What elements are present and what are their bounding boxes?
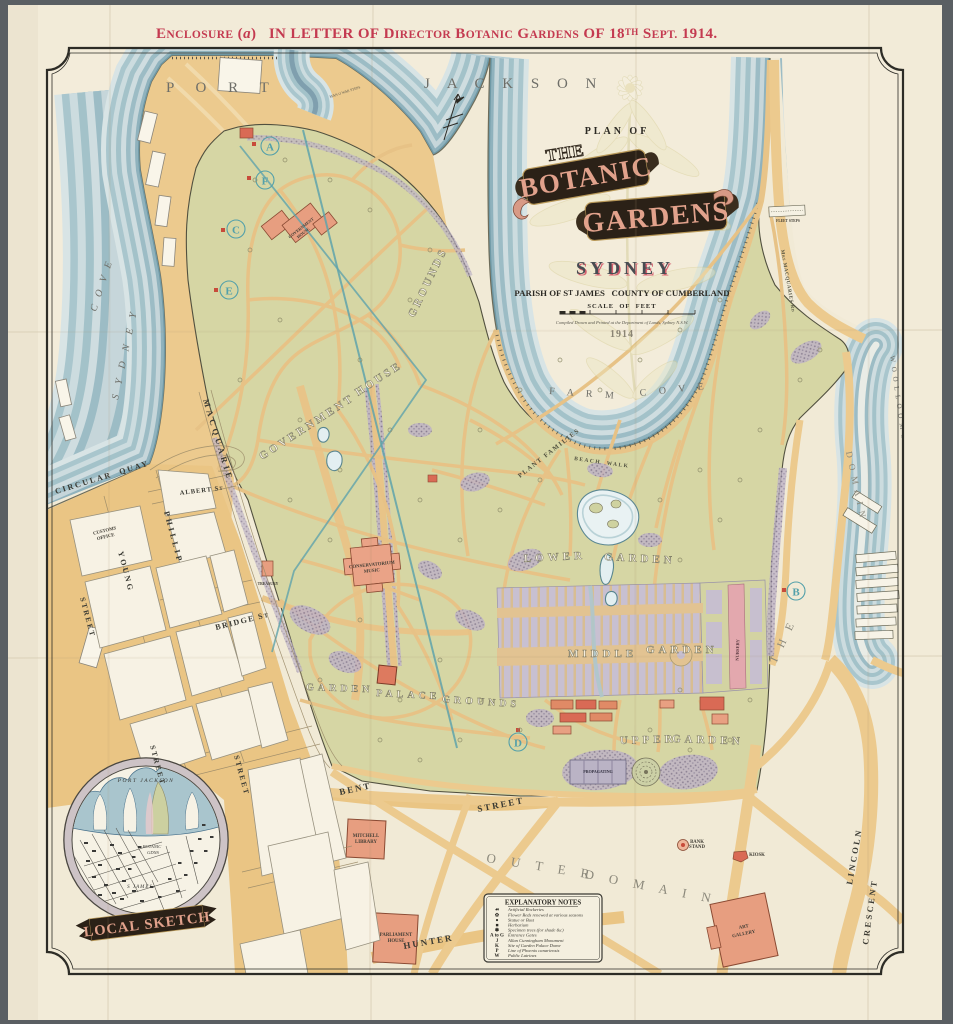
svg-text:GDNS: GDNS xyxy=(147,850,160,855)
svg-text:PROPAGATING: PROPAGATING xyxy=(583,769,612,774)
svg-text:D: D xyxy=(514,738,522,750)
svg-text:PARLIAMENT: PARLIAMENT xyxy=(380,933,413,938)
svg-text:GARDEN: GARDEN xyxy=(672,733,744,747)
svg-text:P O R T: P O R T xyxy=(166,80,278,96)
svg-text:Public Latrines: Public Latrines xyxy=(507,953,537,958)
svg-text:NURSERY: NURSERY xyxy=(735,638,741,661)
svg-text:MIDDLE: MIDDLE xyxy=(568,648,637,660)
svg-text:B: B xyxy=(792,587,800,599)
svg-text:UPPER: UPPER xyxy=(620,733,677,747)
svg-text:GARDEN: GARDEN xyxy=(646,644,718,656)
svg-text:PARISH OF ST JAMES COUNTY OF: PARISH OF ST JAMES COUNTY OF CUMBERLAND xyxy=(514,288,729,298)
svg-text:SCALE OF FEET: SCALE OF FEET xyxy=(587,303,656,310)
svg-text:TREASURY: TREASURY xyxy=(258,582,279,586)
svg-text:HOUSE: HOUSE xyxy=(388,939,405,944)
svg-text:EXPLANATORY NOTES: EXPLANATORY NOTES xyxy=(505,900,582,907)
svg-text:BOTANIC: BOTANIC xyxy=(143,844,162,849)
svg-text:GARDEN: GARDEN xyxy=(306,682,374,695)
svg-text:SYDNEY: SYDNEY xyxy=(576,258,674,278)
svg-text:E: E xyxy=(225,286,232,298)
svg-text:FLEET STEPS: FLEET STEPS xyxy=(776,219,800,223)
svg-text:PLAN OF: PLAN OF xyxy=(585,126,650,137)
svg-text:A: A xyxy=(266,142,274,154)
svg-text:MITCHELL: MITCHELL xyxy=(353,834,379,839)
svg-text:KIOSK: KIOSK xyxy=(749,853,765,858)
svg-text:STAND: STAND xyxy=(689,845,705,850)
svg-text:J A C K S O N: J A C K S O N xyxy=(424,76,603,92)
svg-text:W: W xyxy=(495,954,500,959)
svg-text:✽: ✽ xyxy=(495,928,499,934)
svg-text:S JAMES: S JAMES xyxy=(127,885,153,890)
svg-text:LIBRARY: LIBRARY xyxy=(355,840,377,845)
svg-text:C: C xyxy=(232,225,240,237)
svg-text:F: F xyxy=(262,176,269,188)
